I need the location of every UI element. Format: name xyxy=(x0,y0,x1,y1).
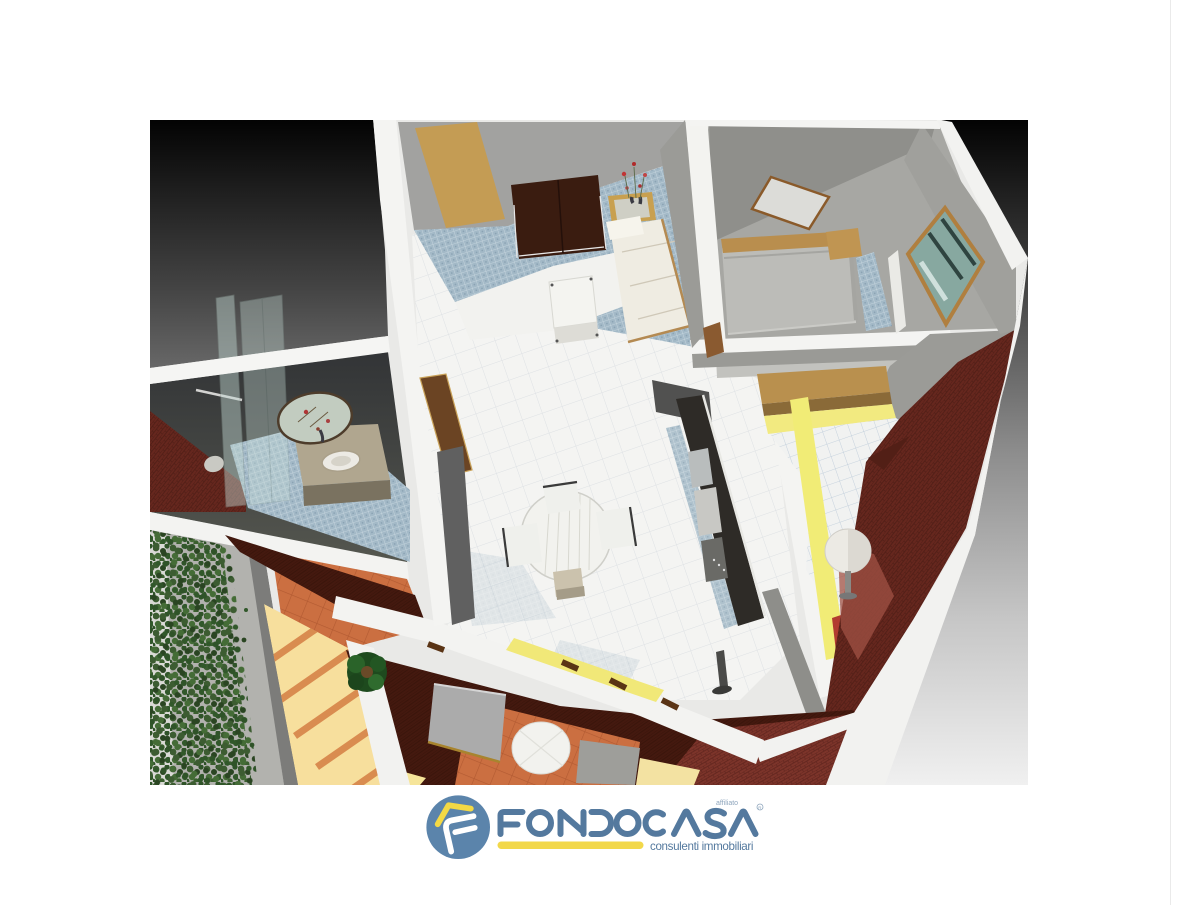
svg-text:affiliato: affiliato xyxy=(716,800,738,807)
svg-text:consulenti immobiliari: consulenti immobiliari xyxy=(650,840,753,853)
